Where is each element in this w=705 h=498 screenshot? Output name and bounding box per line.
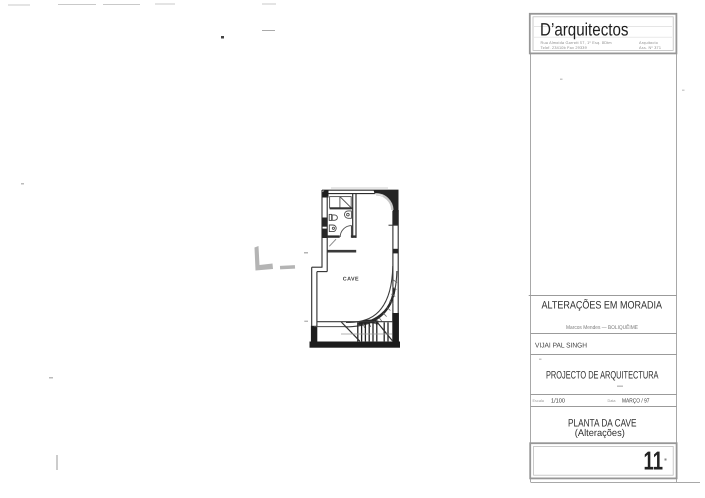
svg-text:Ass. Nº 371: Ass. Nº 371 [639, 46, 661, 50]
svg-text:CAVE: CAVE [343, 276, 359, 282]
svg-text:1/100: 1/100 [551, 397, 566, 404]
svg-text:MARÇO / 97: MARÇO / 97 [622, 397, 650, 404]
svg-text:(Alterações): (Alterações) [575, 428, 625, 439]
svg-text:Telef. 23410b Fax 29339: Telef. 23410b Fax 29339 [541, 46, 587, 50]
svg-text:Data: Data [608, 399, 617, 403]
svg-text:Marcos Mendes — BOLIQUÊIME: Marcos Mendes — BOLIQUÊIME [566, 324, 638, 331]
svg-text:D’arquitectos: D’arquitectos [540, 20, 629, 40]
svg-text:Rua Almeida Garrett 57, 1º Esq: Rua Almeida Garrett 57, 1º Esq. 8Dtm [541, 41, 612, 45]
svg-text:VIJAI PAL SINGH: VIJAI PAL SINGH [535, 343, 587, 350]
svg-text:ALTERAÇÕES EM MORADIA: ALTERAÇÕES EM MORADIA [542, 299, 663, 312]
svg-text:Escala: Escala [533, 399, 545, 403]
svg-text:PROJECTO DE ARQUITECTURA: PROJECTO DE ARQUITECTURA [546, 369, 659, 381]
svg-text:11: 11 [644, 446, 664, 476]
svg-text:Arquitecto: Arquitecto [639, 41, 658, 45]
